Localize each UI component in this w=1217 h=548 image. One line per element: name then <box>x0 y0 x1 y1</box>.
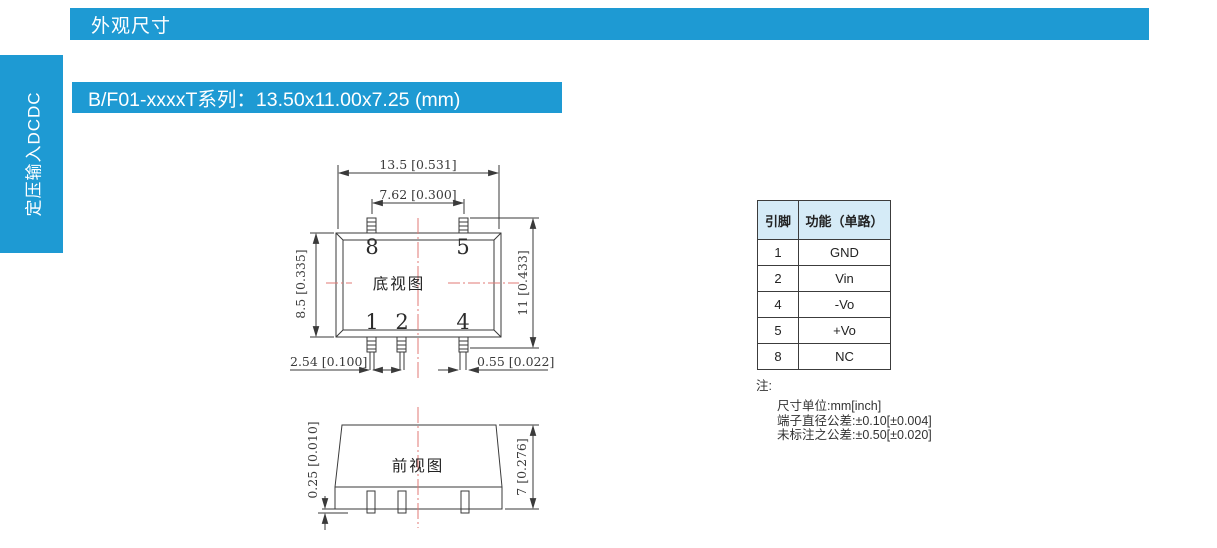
pin-number-cell: 8 <box>758 344 799 370</box>
pin-function-cell: NC <box>799 344 891 370</box>
note-line: 端子直径公差:±0.10[±0.004] <box>777 414 932 429</box>
notes-title: 注: <box>756 375 932 394</box>
table-header-row: 引脚 功能（单路） <box>758 201 891 240</box>
sidebar-label: 定压输入DCDC <box>19 91 44 216</box>
table-row: 1 GND <box>758 240 891 266</box>
pin-1-label: 1 <box>365 310 378 334</box>
dim-pin-span-label: 7.62 [0.300] <box>379 187 456 202</box>
dim-overall-width-label: 13.5 [0.531] <box>379 157 456 172</box>
bottom-view-label: 底视图 <box>373 275 426 293</box>
header-banner: 外观尺寸 <box>70 8 1149 40</box>
dim-lead-width-label: 0.55 [0.022] <box>477 354 554 369</box>
sidebar-tab: 定压输入DCDC <box>0 55 63 253</box>
pin-8-label: 8 <box>365 235 378 259</box>
pin-function-table: 引脚 功能（单路） 1 GND 2 Vin 4 -Vo 5 +Vo 8 <box>757 200 891 370</box>
pin-number-cell: 5 <box>758 318 799 344</box>
pin-function-cell: +Vo <box>799 318 891 344</box>
pin-number-cell: 4 <box>758 292 799 318</box>
datasheet-page: 外观尺寸 定压输入DCDC B/F01-xxxxT系列：13.50x11.00x… <box>0 0 1217 548</box>
table-row: 8 NC <box>758 344 891 370</box>
pin-number-cell: 2 <box>758 266 799 292</box>
dim-total-height-label: 11 [0.433] <box>515 250 530 315</box>
notes-lines: 尺寸单位:mm[inch] 端子直径公差:±0.10[±0.004] 未标注之公… <box>777 399 932 443</box>
dim-pitch-label: 2.54 [0.100] <box>290 354 367 369</box>
pin-function-cell: -Vo <box>799 292 891 318</box>
section-title-bar: B/F01-xxxxT系列：13.50x11.00x7.25 (mm) <box>72 82 562 113</box>
note-line: 尺寸单位:mm[inch] <box>777 399 932 414</box>
dim-standoff-label: 0.25 [0.010] <box>305 421 320 498</box>
col-header-pin: 引脚 <box>758 201 799 240</box>
pin-function-cell: GND <box>799 240 891 266</box>
section-title: B/F01-xxxxT系列：13.50x11.00x7.25 (mm) <box>72 83 460 112</box>
pin-4-label: 4 <box>456 310 469 334</box>
pin-function-cell: Vin <box>799 266 891 292</box>
pin-5-label: 5 <box>456 235 469 259</box>
pin-number-cell: 1 <box>758 240 799 266</box>
table-row: 4 -Vo <box>758 292 891 318</box>
front-view-label: 前视图 <box>392 457 445 475</box>
bottom-view-drawing: 13.5 [0.531] 7.62 [0.300] 8.5 [0.335] 11… <box>285 140 560 390</box>
dim-body-height-label: 8.5 [0.335] <box>293 249 308 318</box>
note-line: 未标注之公差:±0.50[±0.020] <box>777 428 932 443</box>
dim-height-label: 7 [0.276] <box>514 438 529 495</box>
notes: 注: 尺寸单位:mm[inch] 端子直径公差:±0.10[±0.004] 未标… <box>756 375 932 443</box>
page-title: 外观尺寸 <box>70 11 171 38</box>
col-header-function: 功能（单路） <box>799 201 891 240</box>
table-row: 2 Vin <box>758 266 891 292</box>
front-view-drawing: 0.25 [0.010] 7 [0.276] 前视图 <box>285 390 560 545</box>
table-row: 5 +Vo <box>758 318 891 344</box>
pin-2-label: 2 <box>395 310 408 334</box>
